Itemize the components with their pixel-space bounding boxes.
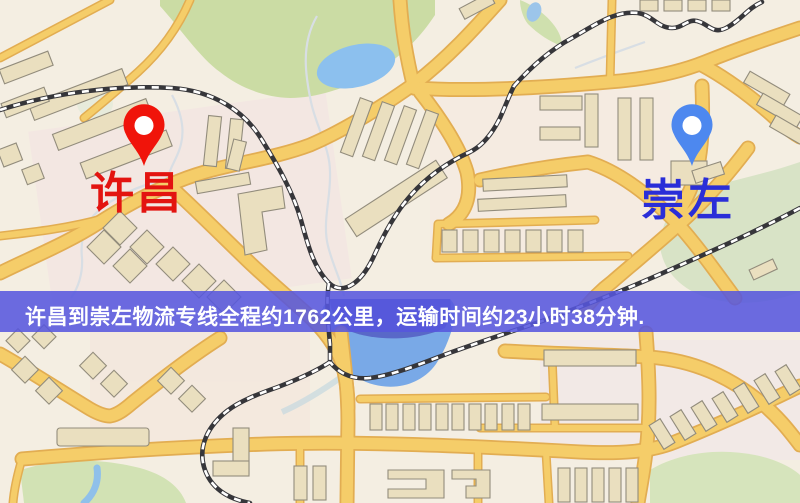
destination-pin-center	[683, 116, 702, 135]
origin-label: 许昌	[90, 172, 184, 216]
map-canvas[interactable]: 许昌 崇左 许昌到崇左物流专线全程约1762公里，运输时间约23小时38分钟.	[0, 0, 800, 503]
map-graphics	[0, 0, 800, 503]
destination-label: 崇左	[641, 179, 735, 223]
origin-pin-icon[interactable]	[121, 102, 167, 168]
origin-pin-center	[135, 116, 154, 135]
destination-pin-icon[interactable]	[669, 102, 715, 168]
route-info-text: 许昌到崇左物流专线全程约1762公里，运输时间约23小时38分钟.	[0, 292, 645, 331]
origin-pin-shape	[124, 104, 165, 166]
destination-pin-shape	[672, 104, 713, 166]
route-info-banner: 许昌到崇左物流专线全程约1762公里，运输时间约23小时38分钟.	[0, 291, 800, 332]
